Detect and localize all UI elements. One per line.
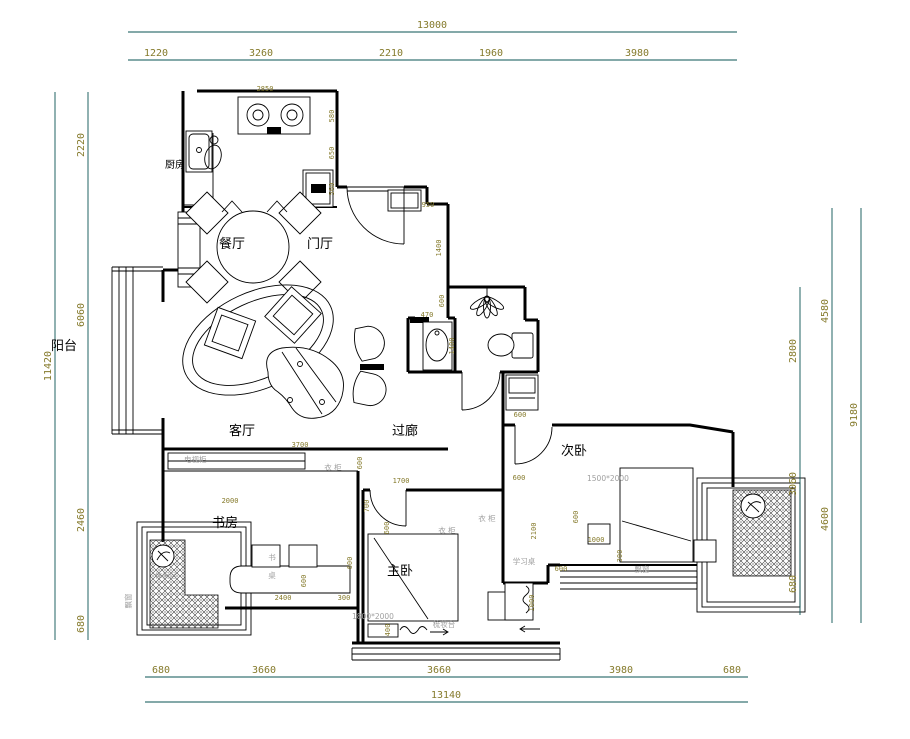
int-dim: 300 <box>338 594 351 602</box>
dim-bottom-seg: 3660 <box>427 665 451 676</box>
int-dim: 1000 <box>588 536 605 544</box>
int-dim: 1400 <box>435 240 443 257</box>
fixture-label-desk: 桌 <box>268 570 276 580</box>
int-dim: 400 <box>384 624 392 637</box>
coffee-table <box>267 347 344 418</box>
int-dim: 1000 <box>528 595 536 612</box>
fixture-label-bay-window: 飘窗 <box>635 564 650 574</box>
floor-plan-drawing: 13000 1220 3260 2210 1960 3980 13140 680… <box>0 0 910 739</box>
dim-right-inner: 2800 <box>788 339 799 363</box>
kitchen-opening-marks <box>222 201 287 212</box>
int-dim: 600 <box>346 557 354 570</box>
room-label-living: 客厅 <box>229 423 255 439</box>
toilet <box>488 333 533 358</box>
dim-top-total: 13000 <box>417 20 447 31</box>
int-dim: 600 <box>572 511 580 524</box>
int-dim: 700 <box>363 500 371 513</box>
int-dim: 600 <box>383 522 391 535</box>
int-dim: 1400 <box>448 338 456 355</box>
dim-bottom-seg: 680 <box>152 665 170 676</box>
int-dim: 600 <box>555 565 568 573</box>
dim-top-seg: 2210 <box>379 48 403 59</box>
dim-top-seg: 1960 <box>479 48 503 59</box>
fixture-label-bay-window: 飘窗 <box>123 594 133 609</box>
fixture-label-wardrobe: 衣 柜 <box>438 525 456 535</box>
dim-bottom-seg: 680 <box>723 665 741 676</box>
dim-bottom-total: 13140 <box>431 690 461 701</box>
fixture-label-wardrobe: 衣 柜 <box>478 513 496 523</box>
int-dim: 600 <box>514 411 527 419</box>
dim-left-seg: 2220 <box>76 133 87 157</box>
int-dim: 470 <box>421 311 434 319</box>
dim-right-total: 9180 <box>849 403 860 427</box>
int-dim: 600 <box>438 295 446 308</box>
dim-left-seg: 2460 <box>76 508 87 532</box>
dim-right-inner: 680 <box>788 575 799 593</box>
int-dim: 600 <box>513 474 526 482</box>
fixture-label-desk: 书 <box>268 552 276 562</box>
room-label-study: 书房 <box>212 515 238 531</box>
room-label-balcony: 阳台 <box>51 339 77 354</box>
dim-bottom-seg: 3980 <box>609 665 633 676</box>
room-label-entry: 门厅 <box>307 237 333 252</box>
dim-top-seg: 3260 <box>249 48 273 59</box>
room-label-second: 次卧 <box>561 443 587 459</box>
room-label-corridor: 过廊 <box>392 423 418 439</box>
dim-bottom-seg: 3660 <box>252 665 276 676</box>
stove <box>238 97 310 134</box>
dresser <box>488 583 533 620</box>
armchair <box>351 323 389 408</box>
fixture-label-wardrobe: 衣 柜 <box>324 462 342 472</box>
furniture <box>152 97 765 637</box>
fixture-label-dresser: 梳妆台 <box>433 619 456 629</box>
int-dim: 600 <box>300 575 308 588</box>
dim-top-seg: 1220 <box>144 48 168 59</box>
int-dim: 300 <box>616 550 624 563</box>
int-dim: 650 <box>328 147 336 160</box>
dim-top-seg: 3980 <box>625 48 649 59</box>
int-dim: 2000 <box>222 497 239 505</box>
int-dim: 580 <box>328 110 336 123</box>
desk <box>230 545 350 593</box>
room-label-dining: 餐厅 <box>219 236 245 252</box>
dim-left-seg: 6060 <box>76 303 87 327</box>
dim-left-seg: 680 <box>76 615 87 633</box>
dim-right-mid: 4600 <box>820 507 831 531</box>
washing-machine <box>506 375 538 410</box>
ceiling-lamp-icon <box>469 287 505 318</box>
fixture-label-bed-size: 1500*2000 <box>587 474 629 483</box>
room-label-kitchen: 厨房 <box>165 158 185 171</box>
fixture-label-bed-size: 1800*2000 <box>352 612 394 621</box>
int-dim: 600 <box>356 457 364 470</box>
kitchen-sink <box>186 131 212 172</box>
dim-right-mid: 4580 <box>820 299 831 323</box>
int-dim: 2400 <box>275 594 292 602</box>
room-label-master: 主卧 <box>387 564 413 579</box>
dim-right-inner: 3060 <box>788 472 799 496</box>
int-dim: 2100 <box>530 523 538 540</box>
balcony-window <box>112 267 163 434</box>
int-dim: 2850 <box>257 85 274 93</box>
int-dim: 950 <box>422 201 435 209</box>
int-dim: 1700 <box>393 477 410 485</box>
fixture-label-study-desk: 学习桌 <box>513 556 536 566</box>
floor-plan-canvas: 13000 1220 3260 2210 1960 3980 13140 680… <box>0 0 910 739</box>
fixture-label-leisure: 休闲区 <box>155 570 178 580</box>
entry-side-cabinet <box>388 190 421 211</box>
int-dim: 3700 <box>292 441 309 449</box>
fixture-label-tv-cabinet: 电视柜 <box>184 454 207 464</box>
int-dim: 560 <box>328 183 336 196</box>
dim-left-total: 11420 <box>43 351 54 381</box>
